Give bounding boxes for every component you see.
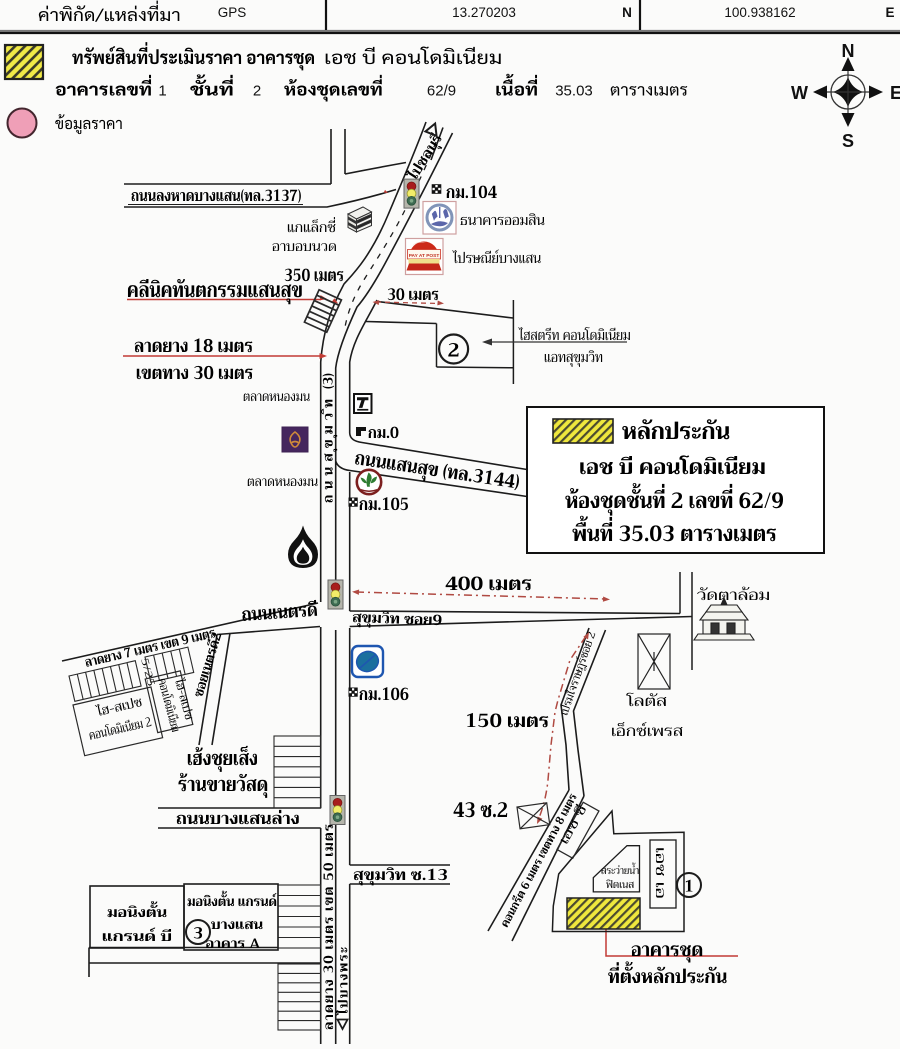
svg-text:1: 1 bbox=[158, 83, 166, 100]
svg-text:GPS: GPS bbox=[218, 5, 247, 20]
svg-text:E: E bbox=[890, 83, 900, 103]
svg-text:13.270203: 13.270203 bbox=[452, 5, 516, 20]
svg-text:PAY AT POST: PAY AT POST bbox=[409, 253, 440, 259]
svg-text:N: N bbox=[622, 5, 632, 20]
svg-text:2: 2 bbox=[253, 83, 261, 100]
svg-text:35.03: 35.03 bbox=[555, 83, 593, 100]
svg-text:N: N bbox=[842, 41, 855, 61]
svg-text:E: E bbox=[885, 5, 894, 20]
svg-text:W: W bbox=[791, 83, 808, 103]
svg-text:100.938162: 100.938162 bbox=[724, 5, 795, 20]
svg-text:62/9: 62/9 bbox=[427, 83, 456, 100]
svg-text:S: S bbox=[842, 131, 854, 151]
